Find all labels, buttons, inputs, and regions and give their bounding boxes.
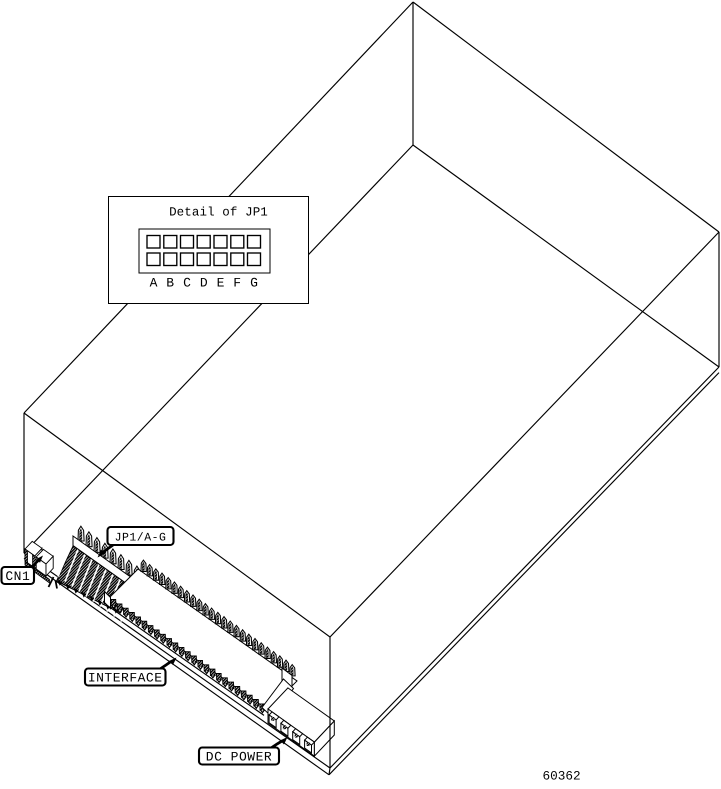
- svg-text:INTERFACE: INTERFACE: [88, 671, 163, 686]
- svg-text:D: D: [200, 276, 208, 291]
- svg-text:60362: 60362: [543, 769, 581, 784]
- svg-text:CN1: CN1: [5, 569, 30, 584]
- svg-text:Detail of JP1: Detail of JP1: [169, 206, 268, 220]
- svg-text:G: G: [250, 276, 258, 291]
- svg-text:DC POWER: DC POWER: [206, 750, 272, 765]
- svg-text:B: B: [166, 276, 174, 291]
- svg-text:C: C: [183, 276, 191, 291]
- svg-text:A: A: [150, 276, 158, 291]
- svg-text:F: F: [233, 276, 241, 291]
- svg-text:JP1/A-G: JP1/A-G: [115, 532, 167, 545]
- svg-text:E: E: [217, 276, 225, 291]
